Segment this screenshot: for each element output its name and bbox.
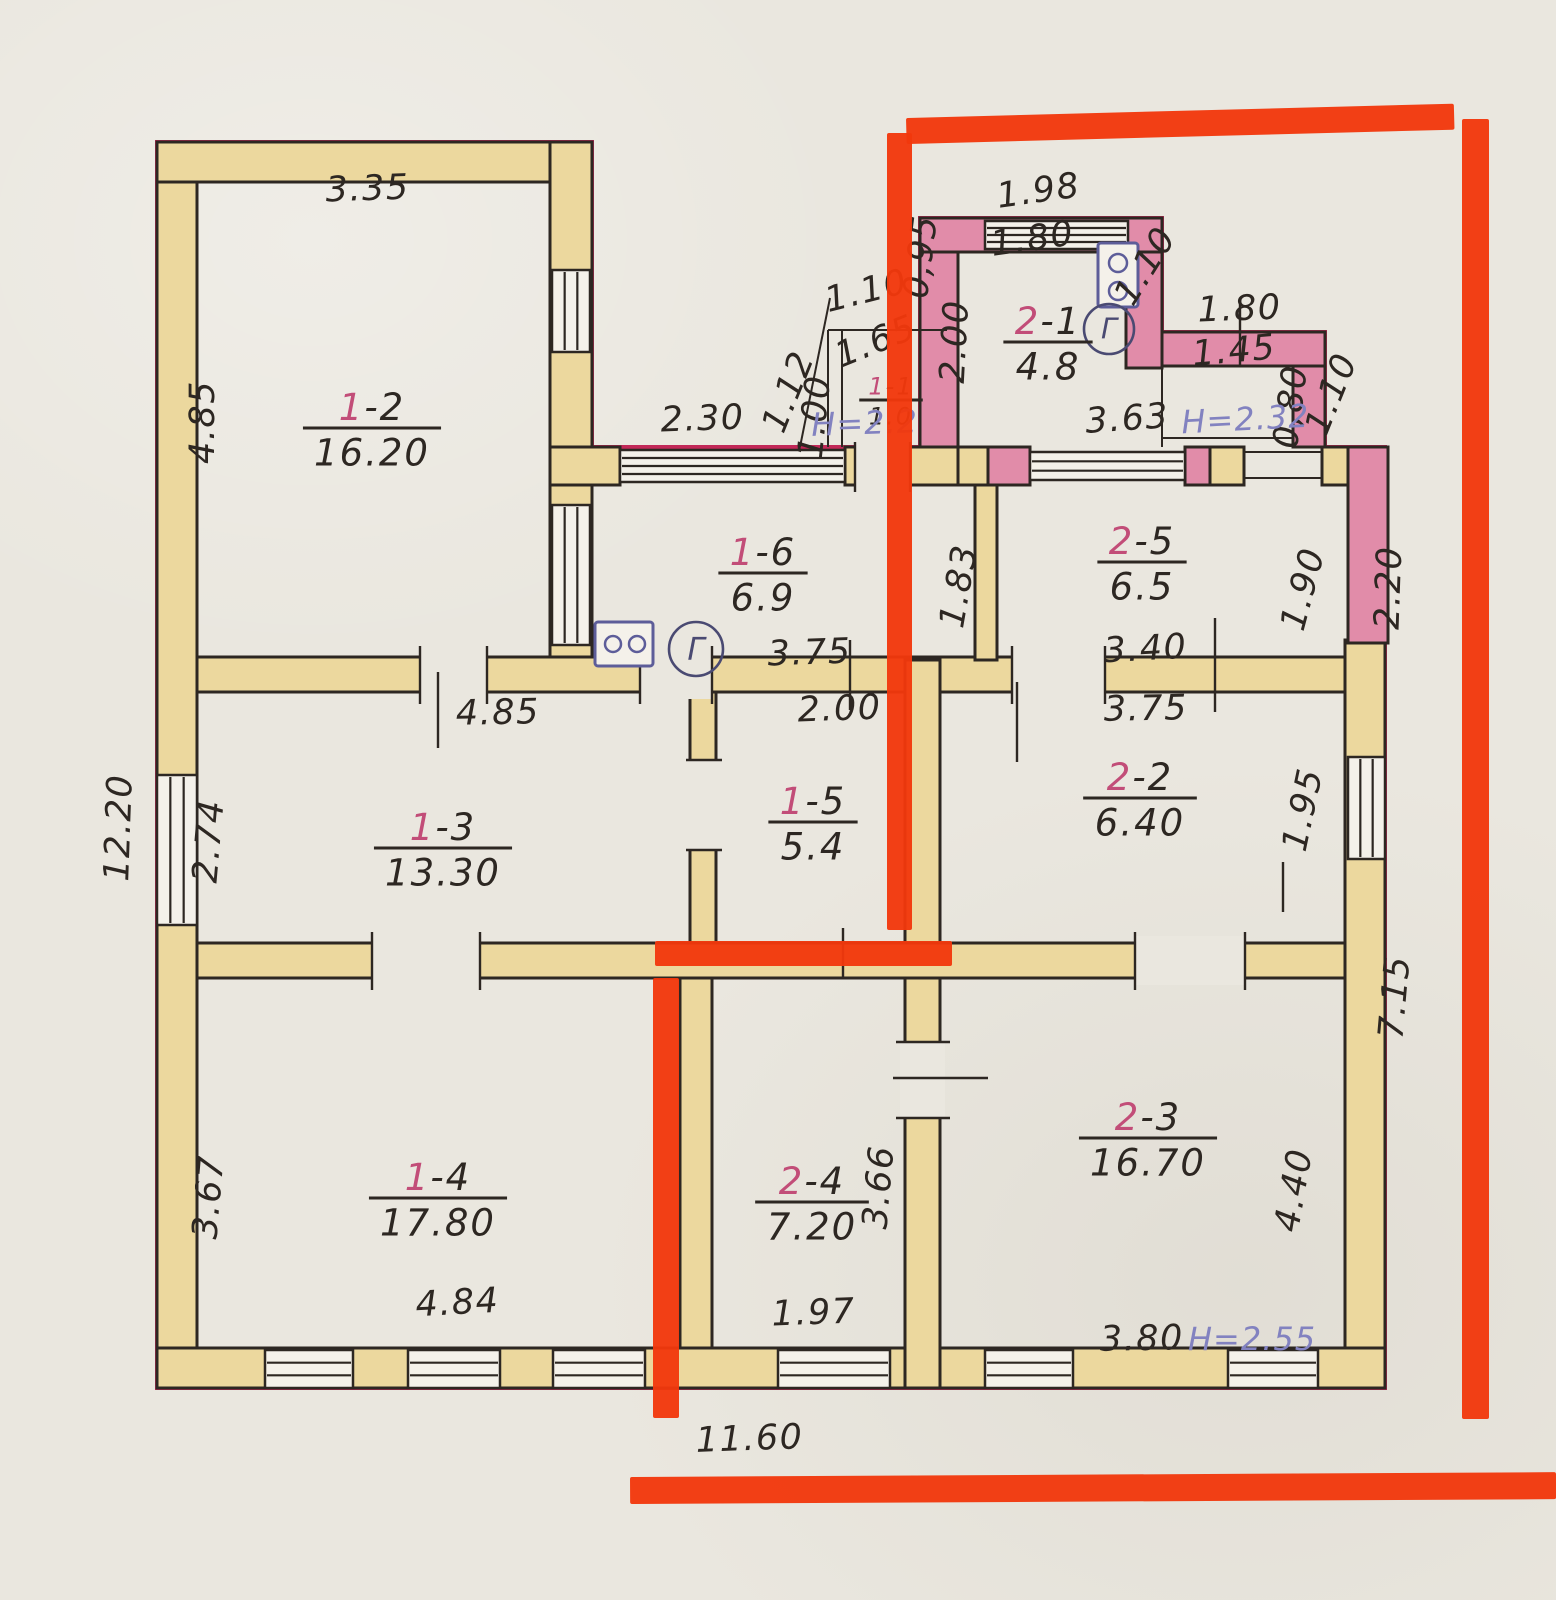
svg-text:1-6: 1-6: [730, 531, 796, 574]
svg-text:6.40: 6.40: [1095, 802, 1185, 845]
floor-plan-drawing: ГГ1-216.201-66.92-14.82-56.51-313.301-55…: [0, 0, 1556, 1600]
red-marker-segment: [887, 133, 912, 930]
dimension-label: 4.85: [455, 692, 540, 733]
svg-text:1-2: 1-2: [339, 386, 405, 429]
svg-text:1-4: 1-4: [405, 1156, 471, 1199]
dimension-label: 4.84: [414, 1281, 500, 1325]
room-label: 1-66.9: [718, 531, 807, 620]
svg-text:5.4: 5.4: [781, 826, 846, 869]
doorway-opening: [683, 760, 723, 850]
room-label: 2-14.8: [1003, 300, 1092, 389]
room-label: 2-56.5: [1097, 520, 1186, 609]
room-label: 2-47.20: [755, 1160, 869, 1249]
svg-text:1-3: 1-3: [410, 806, 476, 849]
svg-text:2-2: 2-2: [1107, 756, 1173, 799]
dimension-label: 1.90: [1273, 543, 1333, 634]
doorway-opening: [1135, 936, 1245, 985]
dimension-label: 11.60: [695, 1417, 804, 1461]
dimension-label: 3.40: [1102, 627, 1188, 671]
svg-text:2-5: 2-5: [1109, 520, 1175, 563]
floor-plan-sheet: ГГ1-216.201-66.92-14.82-56.51-313.301-55…: [0, 0, 1556, 1600]
dimension-label: 1.97: [771, 1292, 856, 1335]
svg-text:7.20: 7.20: [767, 1206, 857, 1249]
dimension-label: 4.85: [183, 380, 223, 464]
svg-text:2-1: 2-1: [1015, 300, 1081, 343]
red-marker-segment: [653, 978, 679, 1418]
dimension-label: 1.45: [1190, 327, 1277, 374]
dimension-label: 1.98: [994, 165, 1083, 216]
dimension-label: 4.40: [1267, 1145, 1321, 1235]
window-symbol: [778, 1350, 890, 1388]
red-marker-layer: [630, 104, 1556, 1504]
window-symbol: [552, 505, 590, 645]
window-symbol: [1348, 757, 1385, 859]
svg-text:Г: Г: [687, 631, 707, 667]
gas-stove-icon: [595, 622, 653, 666]
height-note: Н=2.32: [1180, 397, 1310, 442]
svg-text:6.9: 6.9: [731, 577, 796, 620]
wall: [550, 447, 620, 485]
svg-text:17.80: 17.80: [380, 1202, 496, 1245]
window-symbol: [408, 1350, 500, 1388]
dimension-label: 2.20: [1368, 545, 1411, 630]
dimension-label: 2.00: [797, 688, 882, 731]
dimension-label: 3.35: [325, 168, 410, 211]
svg-text:16.70: 16.70: [1090, 1142, 1206, 1185]
dimensions-layer: 3.354.852.301.981.800,952.001.101.801.45…: [97, 165, 1418, 1460]
dimension-label: 7.15: [1371, 953, 1418, 1040]
dimension-label: 12.20: [97, 773, 141, 882]
room-labels-layer: 1-216.201-66.92-14.82-56.51-313.301-55.4…: [303, 300, 1217, 1249]
svg-text:Г: Г: [1101, 312, 1119, 346]
height-note: Н=2.55: [1188, 1320, 1316, 1358]
dimension-label: 3.63: [1084, 396, 1171, 442]
window-symbol: [552, 270, 590, 352]
svg-text:2-3: 2-3: [1115, 1096, 1181, 1139]
red-marker-segment: [906, 104, 1454, 144]
dimension-label: 3.80: [1099, 1318, 1184, 1359]
wall-highlighted: [988, 447, 1030, 485]
doorway-opening: [900, 1042, 945, 1118]
svg-text:2-4: 2-4: [779, 1160, 845, 1203]
room-label: 1-216.20: [303, 386, 441, 475]
room-label: 2-26.40: [1083, 756, 1197, 845]
window-symbol: [553, 1350, 645, 1388]
window-symbol: [985, 1350, 1073, 1388]
window-symbol: [1030, 452, 1185, 480]
wall: [680, 975, 712, 1348]
window-symbol: [265, 1350, 353, 1388]
svg-text:6.5: 6.5: [1110, 566, 1175, 609]
red-marker-segment: [1462, 119, 1489, 1419]
doorway-opening: [1012, 650, 1105, 699]
dimension-label: 2.30: [660, 398, 745, 441]
dimension-label: 1.95: [1275, 765, 1332, 855]
dimension-label: 2.00: [933, 298, 977, 384]
room-label: 2-316.70: [1079, 1096, 1217, 1185]
doorway-opening: [420, 650, 487, 699]
room-label: 1-417.80: [369, 1156, 507, 1245]
svg-text:1-5: 1-5: [780, 780, 846, 823]
wall: [958, 447, 988, 485]
red-marker-segment: [630, 1472, 1556, 1504]
svg-text:4.8: 4.8: [1016, 346, 1081, 389]
room-label: 1-55.4: [768, 780, 857, 869]
wall-highlighted: [1185, 447, 1210, 485]
room-label: 1-313.30: [374, 806, 512, 895]
svg-text:13.30: 13.30: [385, 852, 501, 895]
svg-text:16.20: 16.20: [314, 432, 430, 475]
dimension-label: 3.67: [185, 1153, 232, 1240]
dimension-label: 3.66: [855, 1143, 902, 1230]
dimension-label: 2.74: [185, 797, 232, 884]
wall: [1210, 447, 1244, 485]
dimension-label: 3.75: [767, 632, 852, 675]
dimension-label: 1.80: [1197, 288, 1282, 331]
doorway-opening: [372, 936, 480, 985]
red-marker-segment: [655, 941, 952, 966]
dimension-label: 3.75: [1103, 688, 1188, 729]
